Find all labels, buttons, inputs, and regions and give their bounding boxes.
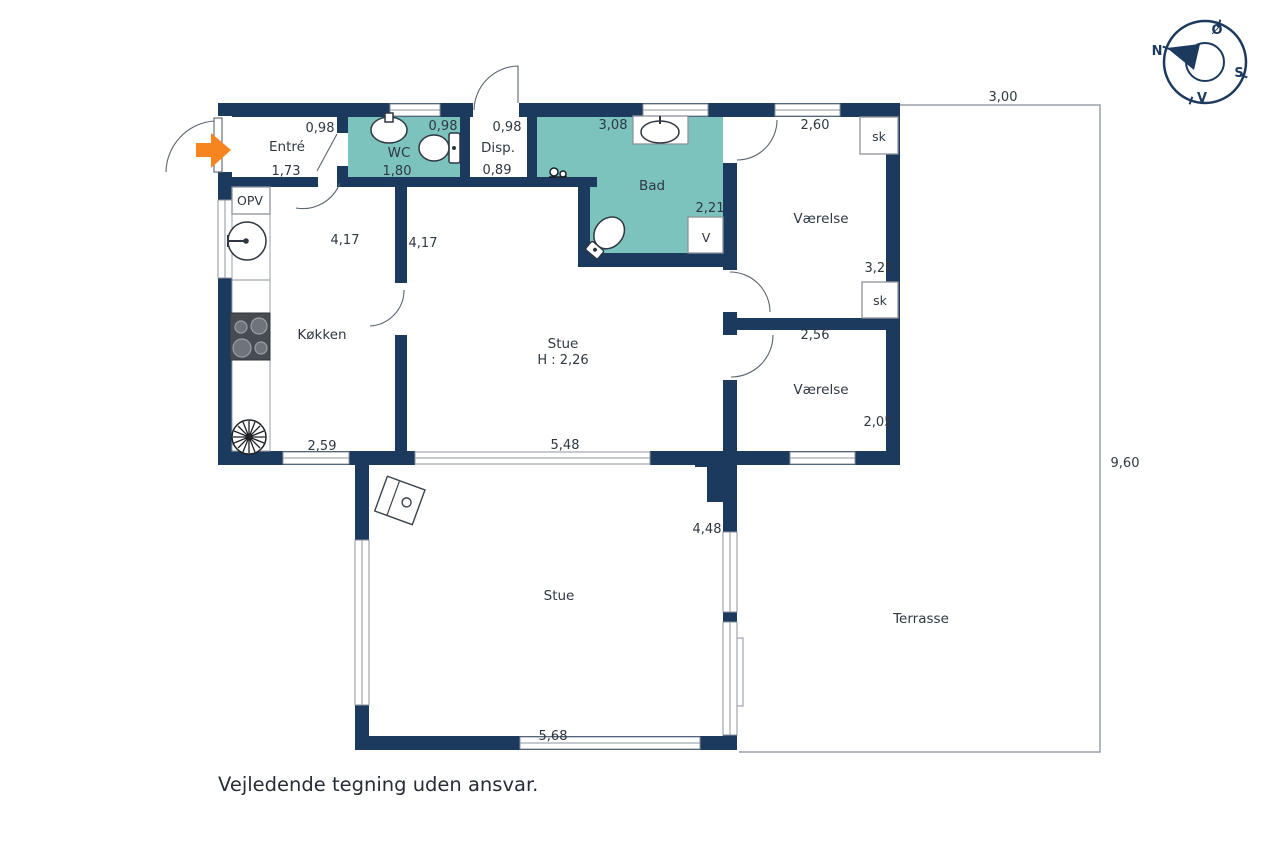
windows <box>218 104 855 749</box>
dim-koekken-side: 4,17 <box>331 233 360 248</box>
window <box>775 104 840 116</box>
dim-bad-right: 2,21 <box>696 201 725 216</box>
wc-door-opening <box>337 133 348 166</box>
dim-entre-top: 0,98 <box>306 121 335 136</box>
window <box>643 104 708 116</box>
ceiling-height-label: H : 2,26 <box>537 353 588 368</box>
dim-terrasse-top: 3,00 <box>989 90 1018 105</box>
window <box>355 540 369 705</box>
compass-e: Ø <box>1211 23 1222 38</box>
dim-koekken-bottom: 2,59 <box>308 439 337 454</box>
compass-v: V <box>1197 91 1207 106</box>
sink-icon <box>633 116 688 144</box>
room-label-entre: Entré <box>269 139 305 155</box>
dim-wc-bottom: 1,80 <box>383 164 412 179</box>
wood-stove-icon <box>375 476 425 524</box>
dim-disp-bottom: 0,89 <box>483 163 512 178</box>
toilet-icon <box>419 133 460 163</box>
washing-machine-label: V <box>702 230 711 245</box>
room-label-wc: WC <box>388 145 411 161</box>
dim-stue2-side: 4,48 <box>693 522 722 537</box>
stove-icon <box>230 313 270 360</box>
dim-vaerelse1-top: 2,60 <box>801 118 830 133</box>
kitchen-fixtures <box>228 187 270 454</box>
bedroom2-door-arc <box>731 335 773 377</box>
dim-stue-side: 4,17 <box>409 236 438 251</box>
compass-n: N <box>1152 44 1163 59</box>
closet-label: sk <box>873 293 888 308</box>
sliding-door <box>723 622 743 735</box>
wc-door-leaf <box>317 134 337 171</box>
bedroom1-door-arc <box>730 272 770 312</box>
disp-door-opening <box>473 103 519 117</box>
disclaimer-text: Vejledende tegning uden ansvar. <box>218 773 538 796</box>
kitchen-door-arc <box>370 290 404 326</box>
dim-terrasse-right: 9,60 <box>1111 456 1140 471</box>
compass-s: S <box>1234 66 1243 81</box>
walls <box>218 103 900 750</box>
dim-vaerelse2-top: 2,56 <box>801 328 830 343</box>
dim-entre-bottom: 1,73 <box>272 164 301 179</box>
terrace-outline <box>739 105 1100 752</box>
window <box>723 532 737 612</box>
room-label-disp: Disp. <box>481 140 515 156</box>
dim-stue-bottom: 5,48 <box>551 438 580 453</box>
window <box>390 104 440 116</box>
kitchen-sink-icon <box>228 222 266 260</box>
room-label-koekken: Køkken <box>297 327 346 343</box>
window <box>790 452 855 464</box>
dim-stue2-bottom: 5,68 <box>539 729 568 744</box>
dim-bad-top: 3,08 <box>599 118 628 133</box>
bedroom1-top-door-arc <box>737 120 777 160</box>
floor-plan: 0,98 Entré 1,73 0,98 WC 1,80 0,98 Disp. … <box>0 0 1280 853</box>
dim-vaerelse1-bottom: 3,20 <box>865 261 894 276</box>
closet-label: sk <box>872 129 887 144</box>
room-label-vaerelse1: Værelse <box>793 211 848 227</box>
compass-rose-icon: N Ø S V <box>1152 20 1248 106</box>
fan-icon <box>232 420 266 454</box>
room-label-terrasse: Terrasse <box>892 611 949 627</box>
room-label-stue2: Stue <box>544 588 575 604</box>
dim-disp-top: 0,98 <box>493 120 522 135</box>
room-label-stue: Stue <box>548 336 579 352</box>
dim-wc-top: 0,98 <box>429 119 458 134</box>
room-label-bad: Bad <box>639 178 665 194</box>
room-label-vaerelse2: Værelse <box>793 382 848 398</box>
dim-vaerelse2-right: 2,05 <box>864 415 893 430</box>
dishwasher-label: OPV <box>237 193 263 208</box>
wide-opening <box>415 452 650 464</box>
